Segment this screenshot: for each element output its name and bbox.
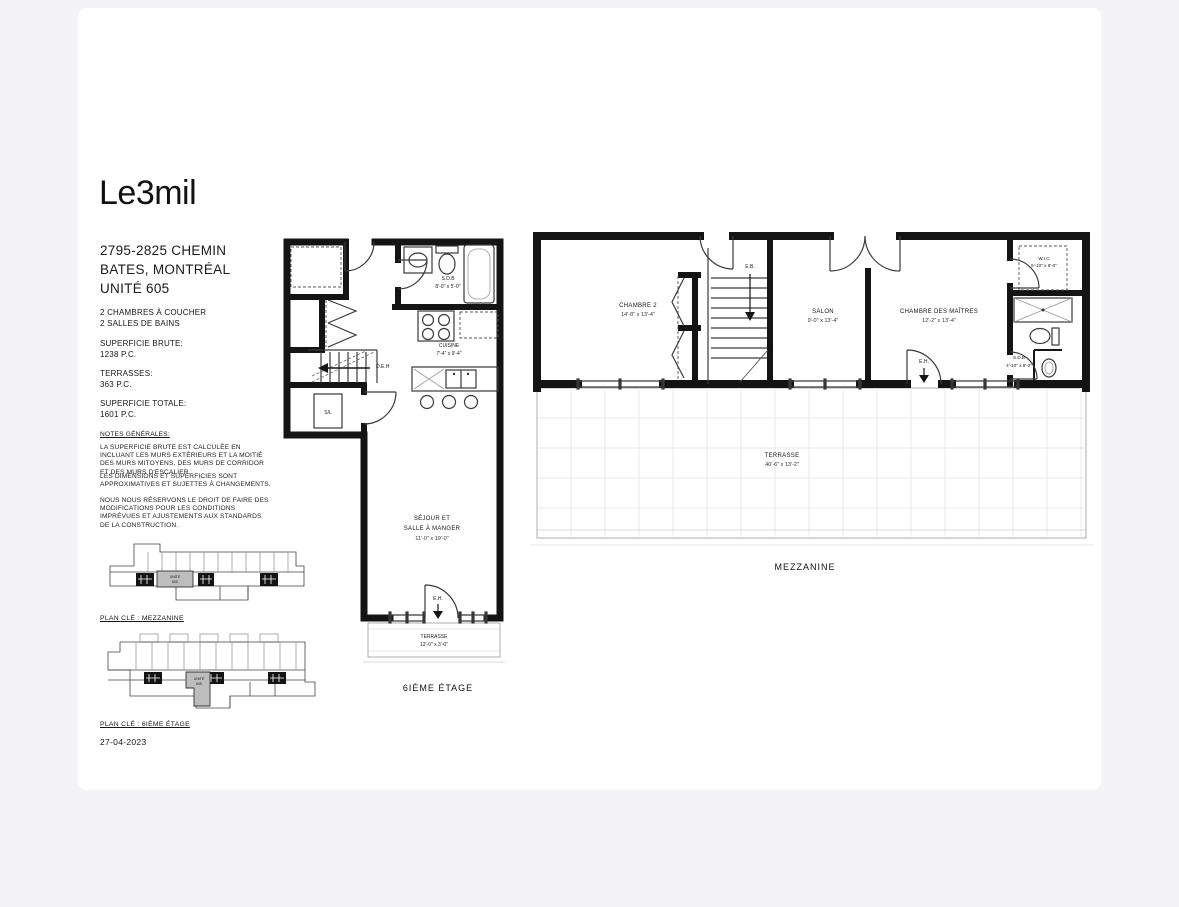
washer-dryer-label: S/L xyxy=(324,410,332,416)
maitres-dims: 12'-2" x 13'-4" xyxy=(922,318,956,324)
terrace-6th-dims: 12'-0" x 3'-0" xyxy=(420,642,448,648)
highlighted-unit-label-1: UNITÉ xyxy=(170,574,181,579)
stairs-up xyxy=(308,350,377,383)
sejour-name-2: SALLE À MANGER xyxy=(404,525,461,532)
down-arrow xyxy=(745,312,755,321)
floor-plan-mezzanine: TERRASSE 40'-6" x 13'-2" E.B. xyxy=(528,228,1098,548)
terrace-door-label: E.H. xyxy=(919,359,929,365)
notes-paragraph-3: NOUS NOUS RÉSERVONS LE DROIT DE FAIRE DE… xyxy=(100,497,272,530)
address-line-1: 2795-2825 CHEMIN xyxy=(100,241,230,260)
address-line-2: BATES, MONTRÉAL xyxy=(100,260,230,279)
superficie-totale-value: 1601 P.C. xyxy=(100,409,186,420)
down-arrow xyxy=(919,375,929,383)
interior-walls xyxy=(681,236,1086,384)
walk-in-closet: W.I.C 5'-10" x 6'-0" xyxy=(1010,246,1067,290)
notes-paragraph-1: LA SUPERFICIE BRUTE EST CALCULÉE EN INCL… xyxy=(100,444,272,477)
entry-closet xyxy=(291,247,341,287)
terrasses-label: TERRASSES: xyxy=(100,368,153,379)
superficie-totale-label: SUPERFICIE TOTALE: xyxy=(100,398,186,409)
maitres-name: CHAMBRE DES MAÎTRES xyxy=(900,308,978,315)
sejour-dims: 11'-0" x 19'-0" xyxy=(415,536,448,542)
stairs-label: E.B. xyxy=(745,264,754,270)
window-icon xyxy=(577,379,1019,389)
double-door-arcs xyxy=(830,236,900,271)
terrace-6th: TERRASSE 12'-0" x 3'-0" xyxy=(363,623,505,662)
laundry-door-arc xyxy=(364,392,396,424)
superficie-totale: SUPERFICIE TOTALE: 1601 P.C. xyxy=(100,398,186,420)
entry-door-arc xyxy=(345,242,374,271)
entry-door-arc xyxy=(700,236,733,269)
project-address: 2795-2825 CHEMIN BATES, MONTRÉAL UNITÉ 6… xyxy=(100,241,230,298)
sdb-mezz-dims: 4'-10" x 8'-0" xyxy=(1006,363,1032,368)
bathroom-mezzanine: S.D.B 4'-10" x 8'-0" xyxy=(1006,298,1072,384)
terrace-door-label: E.H. xyxy=(433,596,443,602)
plan-6th-title: 6IÈME ÉTAGE xyxy=(368,683,508,693)
feature-bathrooms: 2 SALLES DE BAINS xyxy=(100,318,206,329)
terrace-6th-name: TERRASSE xyxy=(421,634,449,640)
bathroom-door-arc xyxy=(398,260,427,289)
superficie-brute: SUPERFICIE BRUTE: 1238 P.C. xyxy=(100,338,183,360)
highlighted-unit: UNITÉ 605 xyxy=(186,672,210,706)
stairs-down xyxy=(708,248,768,384)
highlighted-unit-label-1: UNITÉ xyxy=(194,676,205,681)
plan-date: 27-04-2023 xyxy=(100,737,146,747)
terrace-mezz-name: TERRASSE xyxy=(765,453,800,459)
cuisine-dims: 7'-4" x 9'-4" xyxy=(436,351,461,357)
stairs-arrow xyxy=(318,363,328,373)
salon-dims: 9'-0" x 13'-4" xyxy=(808,318,839,324)
page-background: Le3mil 2795-2825 CHEMIN BATES, MONTRÉAL … xyxy=(0,0,1179,907)
unit-features: 2 CHAMBRES À COUCHER 2 SALLES DE BAINS xyxy=(100,307,206,329)
chambre2-dims: 14'-8" x 13'-4" xyxy=(621,312,655,318)
plan-mezzanine-title: MEZZANINE xyxy=(745,562,865,572)
notes-title: NOTES GÉNÉRALES: xyxy=(100,431,170,438)
stairs-label: D.E.H xyxy=(376,364,390,370)
bifold-closet xyxy=(326,300,356,347)
bar-stools xyxy=(421,396,478,409)
floor-plan-6th-floor: TERRASSE 12'-0" x 3'-0" D.E.H xyxy=(278,234,508,664)
brand-logo: Le3mil xyxy=(99,174,196,213)
superficie-brute-value: 1238 P.C. xyxy=(100,349,183,360)
sejour-name-1: SÉJOUR ET xyxy=(414,515,450,522)
key-plan-6th-floor-label: PLAN CLÉ : 6IÈME ÉTAGE xyxy=(100,721,190,728)
terrasses-value: 363 P.C. xyxy=(100,379,153,390)
toilet-tank xyxy=(436,246,458,253)
elevator-core-icon xyxy=(144,672,286,684)
wic-dims: 5'-10" x 6'-0" xyxy=(1031,263,1057,268)
wic-name: W.I.C xyxy=(1038,256,1050,261)
cuisine-name: CUISINE xyxy=(439,343,460,349)
key-plan-mezzanine-label: PLAN CLÉ : MEZZANINE xyxy=(100,615,184,622)
counter xyxy=(460,312,498,338)
sdb-mezz-name: S.D.B xyxy=(1013,355,1025,360)
toilet-tank xyxy=(1052,328,1059,345)
chambre2-name: CHAMBRE 2 xyxy=(619,303,657,309)
highlighted-unit-label-2: 605 xyxy=(172,580,178,584)
bathtub-icon xyxy=(464,245,494,303)
notes-paragraph-2: LES DIMENSIONS ET SUPERFICIES SONT APPRO… xyxy=(100,473,272,489)
terrace-mezz-dims: 40'-6" x 13'-2" xyxy=(765,462,799,468)
unit-number: UNITÉ 605 xyxy=(100,279,230,298)
down-arrow xyxy=(433,611,443,619)
sdb-6th-name: S.D.B xyxy=(441,276,455,282)
sdb-6th-dims: 8'-0" x 5'-0" xyxy=(435,284,460,290)
terrace-mezzanine: TERRASSE 40'-6" x 13'-2" xyxy=(530,388,1094,545)
feature-bedrooms: 2 CHAMBRES À COUCHER xyxy=(100,307,206,318)
bathroom-6th xyxy=(398,245,494,303)
kitchen xyxy=(412,311,498,409)
toilet-icon xyxy=(439,254,455,274)
toilet-icon xyxy=(1030,329,1050,344)
highlighted-unit: UNITÉ 605 xyxy=(157,571,193,587)
kitchen-island xyxy=(412,367,498,391)
highlighted-unit-label-2: 605 xyxy=(196,682,202,686)
salon-name: SALON xyxy=(812,309,834,315)
superficie-brute-label: SUPERFICIE BRUTE: xyxy=(100,338,183,349)
terrasses-area: TERRASSES: 363 P.C. xyxy=(100,368,153,390)
